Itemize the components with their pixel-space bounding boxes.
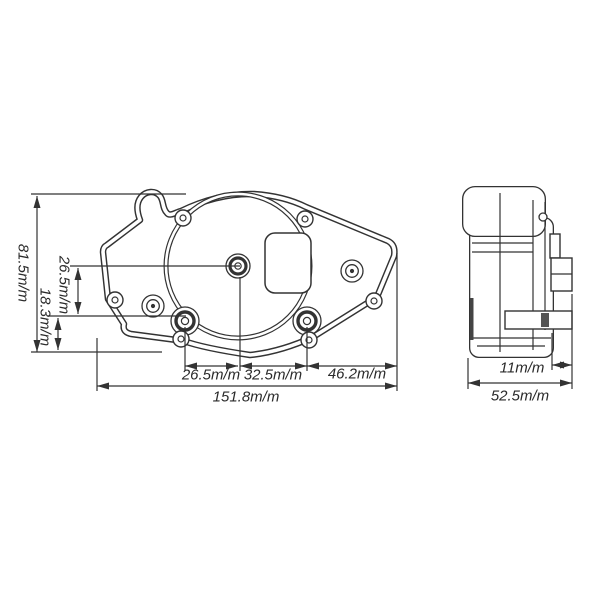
- label-center-to-right-mount: 32.5m/m: [244, 367, 302, 384]
- screw-boss-left-edge: [107, 292, 123, 308]
- label-mounts-to-bottom: 18.3m/m: [37, 288, 54, 346]
- side-step-upper: [550, 234, 560, 258]
- washer-boss-right: [341, 260, 363, 282]
- washer-boss-left: [142, 295, 164, 317]
- front-view: [103, 192, 394, 355]
- side-view: [465, 189, 572, 355]
- label-total-width: 151.8m/m: [213, 389, 280, 406]
- screw-boss-bump: [175, 210, 191, 226]
- side-clip: [539, 213, 547, 221]
- label-center-to-mounts: 26.5m/m: [56, 255, 73, 314]
- dimensional-drawing: 81.5m/m 26.5m/m 18.3m/m 26.5m/m 32.5m/m …: [0, 0, 600, 600]
- side-connector-tab: [551, 258, 572, 291]
- side-bracket-arm: [505, 311, 572, 329]
- label-left-mount-to-center: 26.5m/m: [181, 367, 240, 384]
- side-body: [472, 220, 551, 355]
- screw-boss-right-edge: [366, 293, 382, 309]
- screw-boss-bottom-left: [173, 331, 189, 347]
- label-connector-depth: 11m/m: [500, 360, 545, 377]
- technical-drawing-canvas: 81.5m/m 26.5m/m 18.3m/m 26.5m/m 32.5m/m …: [0, 0, 600, 600]
- side-left-accent: [470, 298, 474, 340]
- screw-boss-top-right: [297, 211, 313, 227]
- side-top-bezel: [465, 189, 543, 234]
- screw-boss-bottom-right: [301, 332, 317, 348]
- label-total-depth: 52.5m/m: [491, 388, 549, 405]
- screw-bosses: [107, 210, 382, 348]
- label-total-height: 81.5m/m: [15, 244, 32, 302]
- label-right-mount-to-edge: 46.2m/m: [328, 366, 386, 383]
- display-window: [265, 233, 311, 293]
